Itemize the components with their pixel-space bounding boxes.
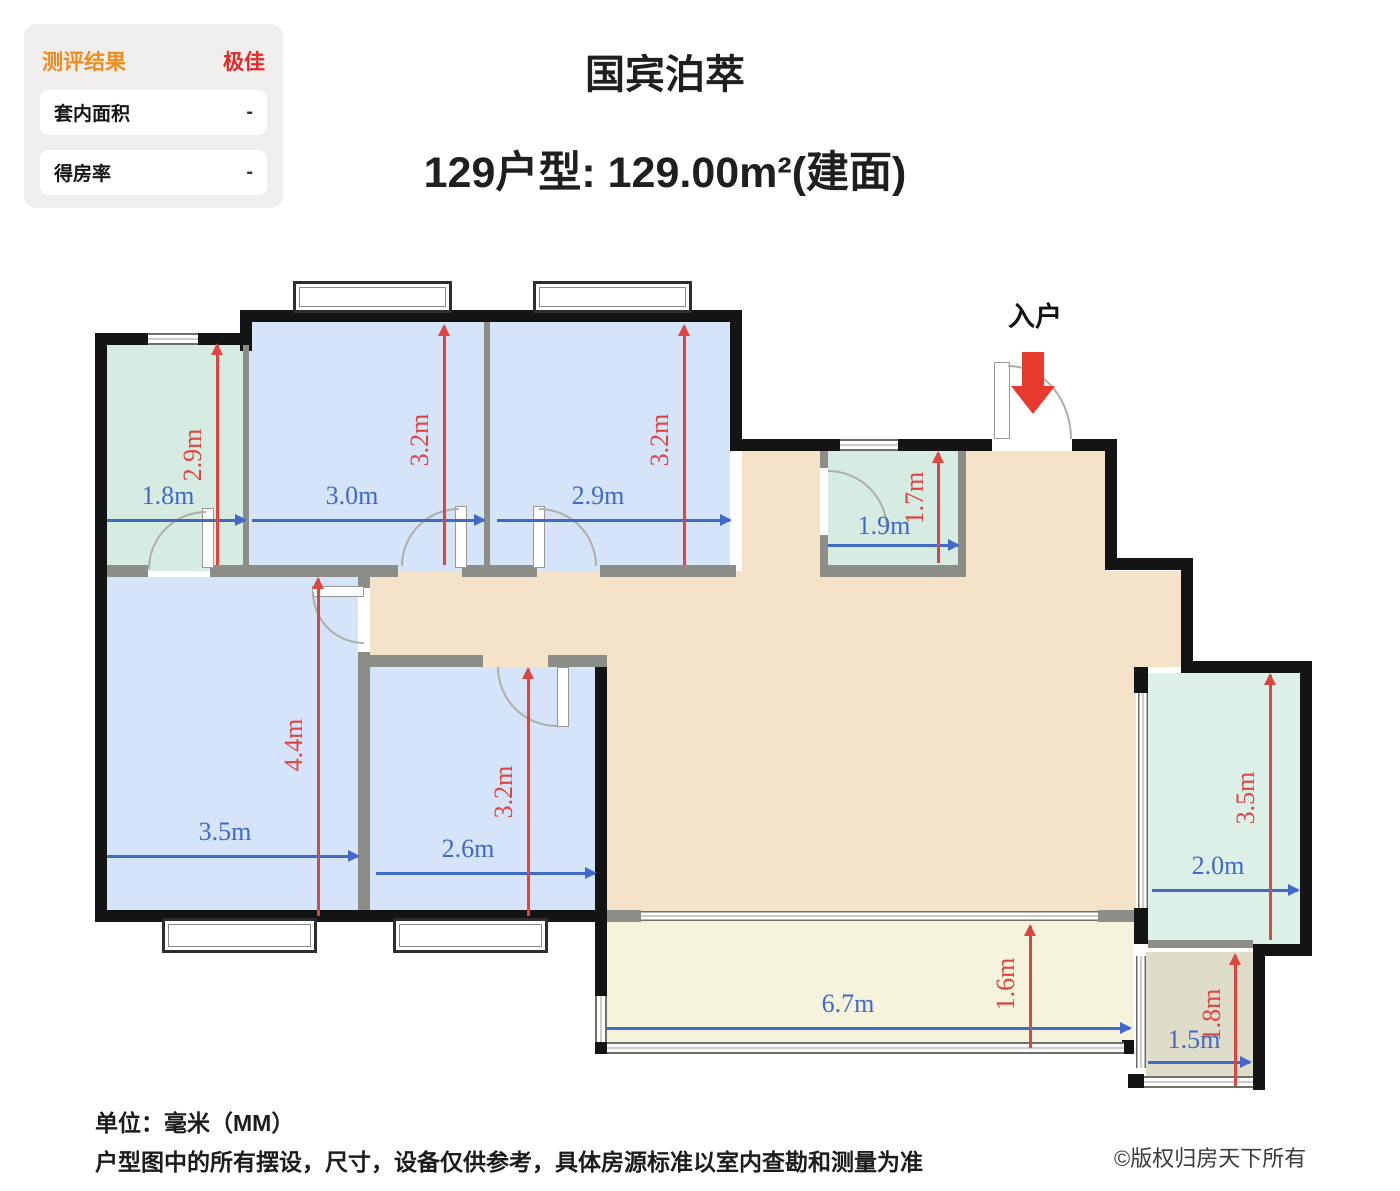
dim-label: 2.9m xyxy=(572,481,625,511)
dim-label: 3.2m xyxy=(645,414,675,467)
wall-interior xyxy=(243,345,249,571)
dim-label: 3.0m xyxy=(326,481,379,511)
wall-interior xyxy=(210,565,398,577)
dim-line xyxy=(107,855,358,858)
wall-corner xyxy=(595,1040,607,1054)
wall-interior xyxy=(1098,910,1134,922)
wall-interior xyxy=(548,655,607,667)
wall-interior xyxy=(820,535,828,571)
wall-corner xyxy=(1128,1074,1144,1088)
wall xyxy=(1105,439,1117,570)
dim-label: 3.5m xyxy=(199,817,252,847)
window xyxy=(607,1042,1124,1054)
dim-line xyxy=(1269,675,1272,940)
door-leaf xyxy=(557,667,569,727)
dim-label: 1.7m xyxy=(900,472,930,525)
wall-interior xyxy=(820,565,966,577)
wall-interior xyxy=(484,322,490,571)
wall xyxy=(595,910,607,998)
dim-line xyxy=(607,1027,1130,1030)
wall-interior xyxy=(462,565,537,577)
dim-line xyxy=(527,669,530,916)
room-living-middle xyxy=(370,571,1181,667)
entrance-arrow-icon xyxy=(1022,352,1044,388)
dim-line xyxy=(1234,955,1237,1086)
dim-line xyxy=(937,453,940,563)
sliding-door xyxy=(641,911,1098,921)
floor-plan: 入户 1.8m 2.9m 3.0m 3.2m 2.9m 3.2m 1.9m 1.… xyxy=(0,0,1400,1191)
room-living-main xyxy=(607,661,1136,916)
room-bedroom-master xyxy=(107,577,358,916)
bay-window xyxy=(533,281,692,313)
wall-interior xyxy=(820,451,828,468)
wall-interior xyxy=(1148,940,1253,948)
dim-line xyxy=(683,326,686,565)
dim-line xyxy=(107,519,245,522)
copyright-text: ©版权归房天下所有 xyxy=(1114,1141,1306,1173)
wall-interior xyxy=(358,652,370,910)
room-flex-right xyxy=(1148,673,1300,944)
dim-label: 2.9m xyxy=(178,429,208,482)
window xyxy=(148,333,198,345)
wall-corner xyxy=(1134,667,1148,693)
window xyxy=(1136,956,1146,1068)
dim-label: 6.7m xyxy=(822,989,875,1019)
dim-label: 3.2m xyxy=(405,414,435,467)
wall-interior xyxy=(958,451,966,571)
dim-label: 1.8m xyxy=(142,481,195,511)
dim-line xyxy=(1029,926,1032,1048)
entrance-label: 入户 xyxy=(975,295,1095,334)
dim-label: 4.4m xyxy=(279,719,309,772)
dim-line xyxy=(1152,889,1298,892)
wall-interior xyxy=(607,910,641,922)
wall-interior xyxy=(107,565,148,577)
wall xyxy=(1181,661,1312,673)
window xyxy=(595,996,607,1042)
page: 测评结果 极佳 套内面积 - 得房率 - 国宾泊萃 129户型: 129.00m… xyxy=(0,0,1400,1191)
wall xyxy=(730,310,742,451)
entrance-arrow-icon xyxy=(1011,386,1055,414)
wall xyxy=(1253,944,1265,1090)
bay-window xyxy=(393,918,548,953)
dim-line xyxy=(443,326,446,565)
dim-line xyxy=(216,345,219,565)
dim-line xyxy=(252,519,484,522)
wall-interior xyxy=(600,565,736,577)
unit-note: 单位：毫米（MM） xyxy=(95,1104,294,1138)
wall-interior xyxy=(358,655,483,667)
dim-line xyxy=(497,519,730,522)
dim-label: 2.6m xyxy=(442,834,495,864)
wall-corner xyxy=(1134,908,1148,944)
room-bedroom-top-2 xyxy=(490,322,730,571)
dim-line xyxy=(317,579,320,916)
dim-label: 1.8m xyxy=(1197,989,1227,1042)
door-opening xyxy=(820,468,828,535)
dim-label: 3.2m xyxy=(489,766,519,819)
wall xyxy=(95,333,107,922)
dim-label: 2.0m xyxy=(1192,851,1245,881)
window xyxy=(1138,693,1148,908)
dim-label: 3.5m xyxy=(1231,772,1261,825)
bay-window xyxy=(293,281,452,313)
wall xyxy=(1105,558,1193,570)
disclaimer-text: 户型图中的所有摆设，尺寸，设备仅供参考，具体房源标准以室内查勘和测量为准 xyxy=(95,1143,923,1177)
dim-label: 1.6m xyxy=(991,958,1021,1011)
wall xyxy=(1181,558,1193,673)
dim-line xyxy=(376,872,595,875)
bay-window xyxy=(162,918,317,953)
window xyxy=(840,439,898,451)
wall xyxy=(1300,661,1312,956)
